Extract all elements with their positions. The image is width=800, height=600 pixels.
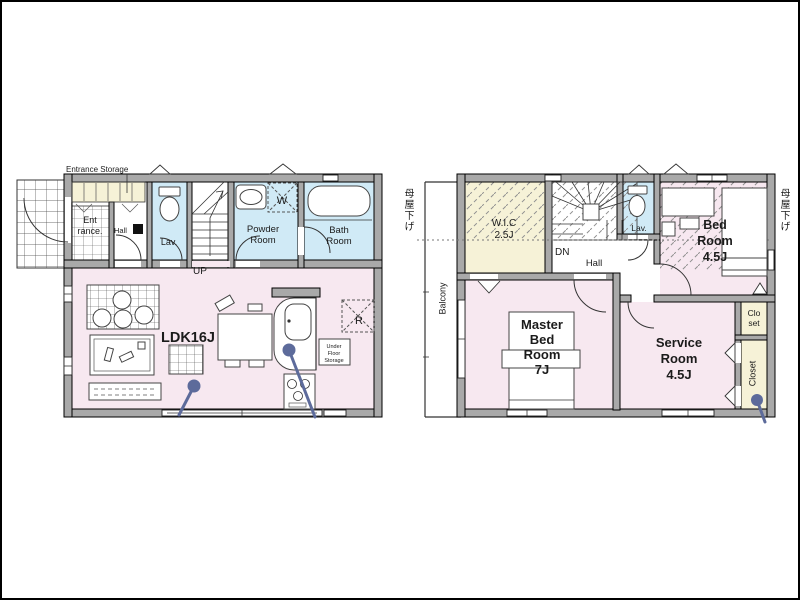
ufs-label-line3: Storage — [324, 358, 343, 364]
lav-2f-door-opening — [628, 235, 648, 239]
floor-plan-2f: W.I.C 2.5J DN Hall Lav. Bed Room 4.5J Ma… — [417, 164, 775, 422]
bed-room-label-line2: Room — [697, 234, 732, 248]
master-label-line2: Bed — [530, 332, 555, 347]
floor-plan-1f: Entrance Storage Ent rance. Hall Lav. UP… — [17, 164, 382, 417]
balcony-label: Balcony — [438, 269, 449, 329]
stairs-1f — [192, 182, 228, 256]
floor-mat — [169, 345, 203, 374]
chair-icon — [248, 304, 262, 311]
cushion-icon — [135, 306, 153, 324]
closet-upper-label-line2: set — [748, 318, 760, 328]
bath-door-opening — [298, 227, 304, 255]
lav-1f-label: Lav. — [161, 237, 177, 247]
powder-door-opening — [236, 261, 260, 267]
closet-lower-label: Closet — [748, 344, 759, 404]
bed-room-label-line1: Bed — [703, 218, 727, 232]
lav-2f-label: Lav. — [631, 223, 646, 233]
vent-window-icon — [150, 165, 170, 174]
entrance-storage-cabinet — [72, 182, 145, 202]
floor-plan-page: Entrance Storage Ent rance. Hall Lav. UP… — [0, 0, 800, 600]
window — [545, 175, 561, 181]
vent-window-icon — [629, 165, 649, 174]
pin-head-icon — [188, 380, 201, 393]
distribution-board-icon — [133, 224, 143, 234]
master-label-line1: Master — [521, 317, 563, 332]
powder-sink-icon — [236, 185, 266, 209]
rug-sofa-set — [87, 285, 159, 329]
window — [323, 175, 338, 181]
hall-1f-label: Hall — [114, 226, 127, 235]
service-label-line1: Service — [656, 335, 702, 350]
faucet-icon — [287, 319, 290, 322]
kitchen-counter — [274, 298, 316, 370]
master-label-line3: Room — [524, 347, 561, 362]
single-bed — [722, 188, 767, 276]
hall-2f-label: Hall — [586, 258, 602, 269]
toilet-1f-icon — [159, 187, 180, 221]
cushion-icon — [114, 310, 132, 328]
stairs-dn-label: DN — [555, 247, 569, 258]
entrance-label-line1: Ent — [83, 215, 97, 225]
toilet-2f-icon — [628, 186, 647, 217]
powder-room-label-line2: Room — [250, 235, 275, 246]
porch-tiles — [17, 180, 64, 268]
lav-2f-door-swing — [628, 240, 648, 260]
pin-head-icon — [283, 344, 296, 357]
hall-door-opening — [115, 261, 141, 267]
master-label-line4: 7J — [535, 362, 549, 377]
closet-fold-opening — [735, 343, 741, 363]
chair-icon — [249, 360, 264, 367]
chair-icon — [225, 360, 240, 367]
window — [768, 250, 774, 270]
wic-door-opening — [470, 274, 498, 279]
bed-room-label-line3: 4.5J — [703, 250, 727, 264]
entrance-label-line2: rance. — [77, 226, 102, 236]
bath-room-label-line1: Bath — [329, 225, 349, 236]
vent-window-icon — [664, 164, 688, 174]
lav-door-opening — [160, 261, 180, 267]
wic-label-line1: W.I.C — [492, 218, 516, 229]
roof-lowered-label-left: 母屋下げ — [402, 188, 412, 232]
washer-label: W — [277, 195, 288, 207]
master-door-opening — [574, 274, 606, 279]
front-door-opening — [65, 197, 71, 243]
floor-plan-drawing: Entrance Storage Ent rance. Hall Lav. UP… — [2, 2, 800, 600]
hall-door-swing — [116, 235, 141, 260]
ufs-label-line2: Floor — [328, 351, 341, 357]
cushion-icon — [93, 309, 111, 327]
powder-room-label-line1: Powder — [247, 224, 279, 235]
service-label-line3: 4.5J — [666, 367, 691, 382]
roof-lowered-label-right: 母屋下げ — [778, 188, 788, 232]
refrigerator-label: R — [355, 315, 363, 327]
closet-fold-opening — [735, 386, 741, 406]
ufs-label-line1: Under — [327, 344, 342, 350]
entrance-storage-label: Entrance Storage — [66, 165, 129, 174]
stairs-up-label: UP — [193, 266, 207, 277]
ldk-label: LDK16J — [161, 330, 215, 346]
service-label-line2: Room — [661, 351, 698, 366]
cushion-icon — [113, 291, 131, 309]
vent-window-icon — [270, 164, 296, 174]
tv-board — [89, 383, 161, 400]
wic-label-line2: 2.5J — [495, 230, 514, 241]
chair-icon — [680, 218, 699, 229]
low-table — [90, 335, 154, 375]
bath-room-label-line2: Room — [326, 236, 351, 247]
kitchen-wall-stub — [272, 288, 320, 297]
window — [324, 410, 346, 416]
hanger-pipe-icon — [122, 204, 138, 212]
closet-upper-label-line1: Clo — [748, 308, 761, 318]
